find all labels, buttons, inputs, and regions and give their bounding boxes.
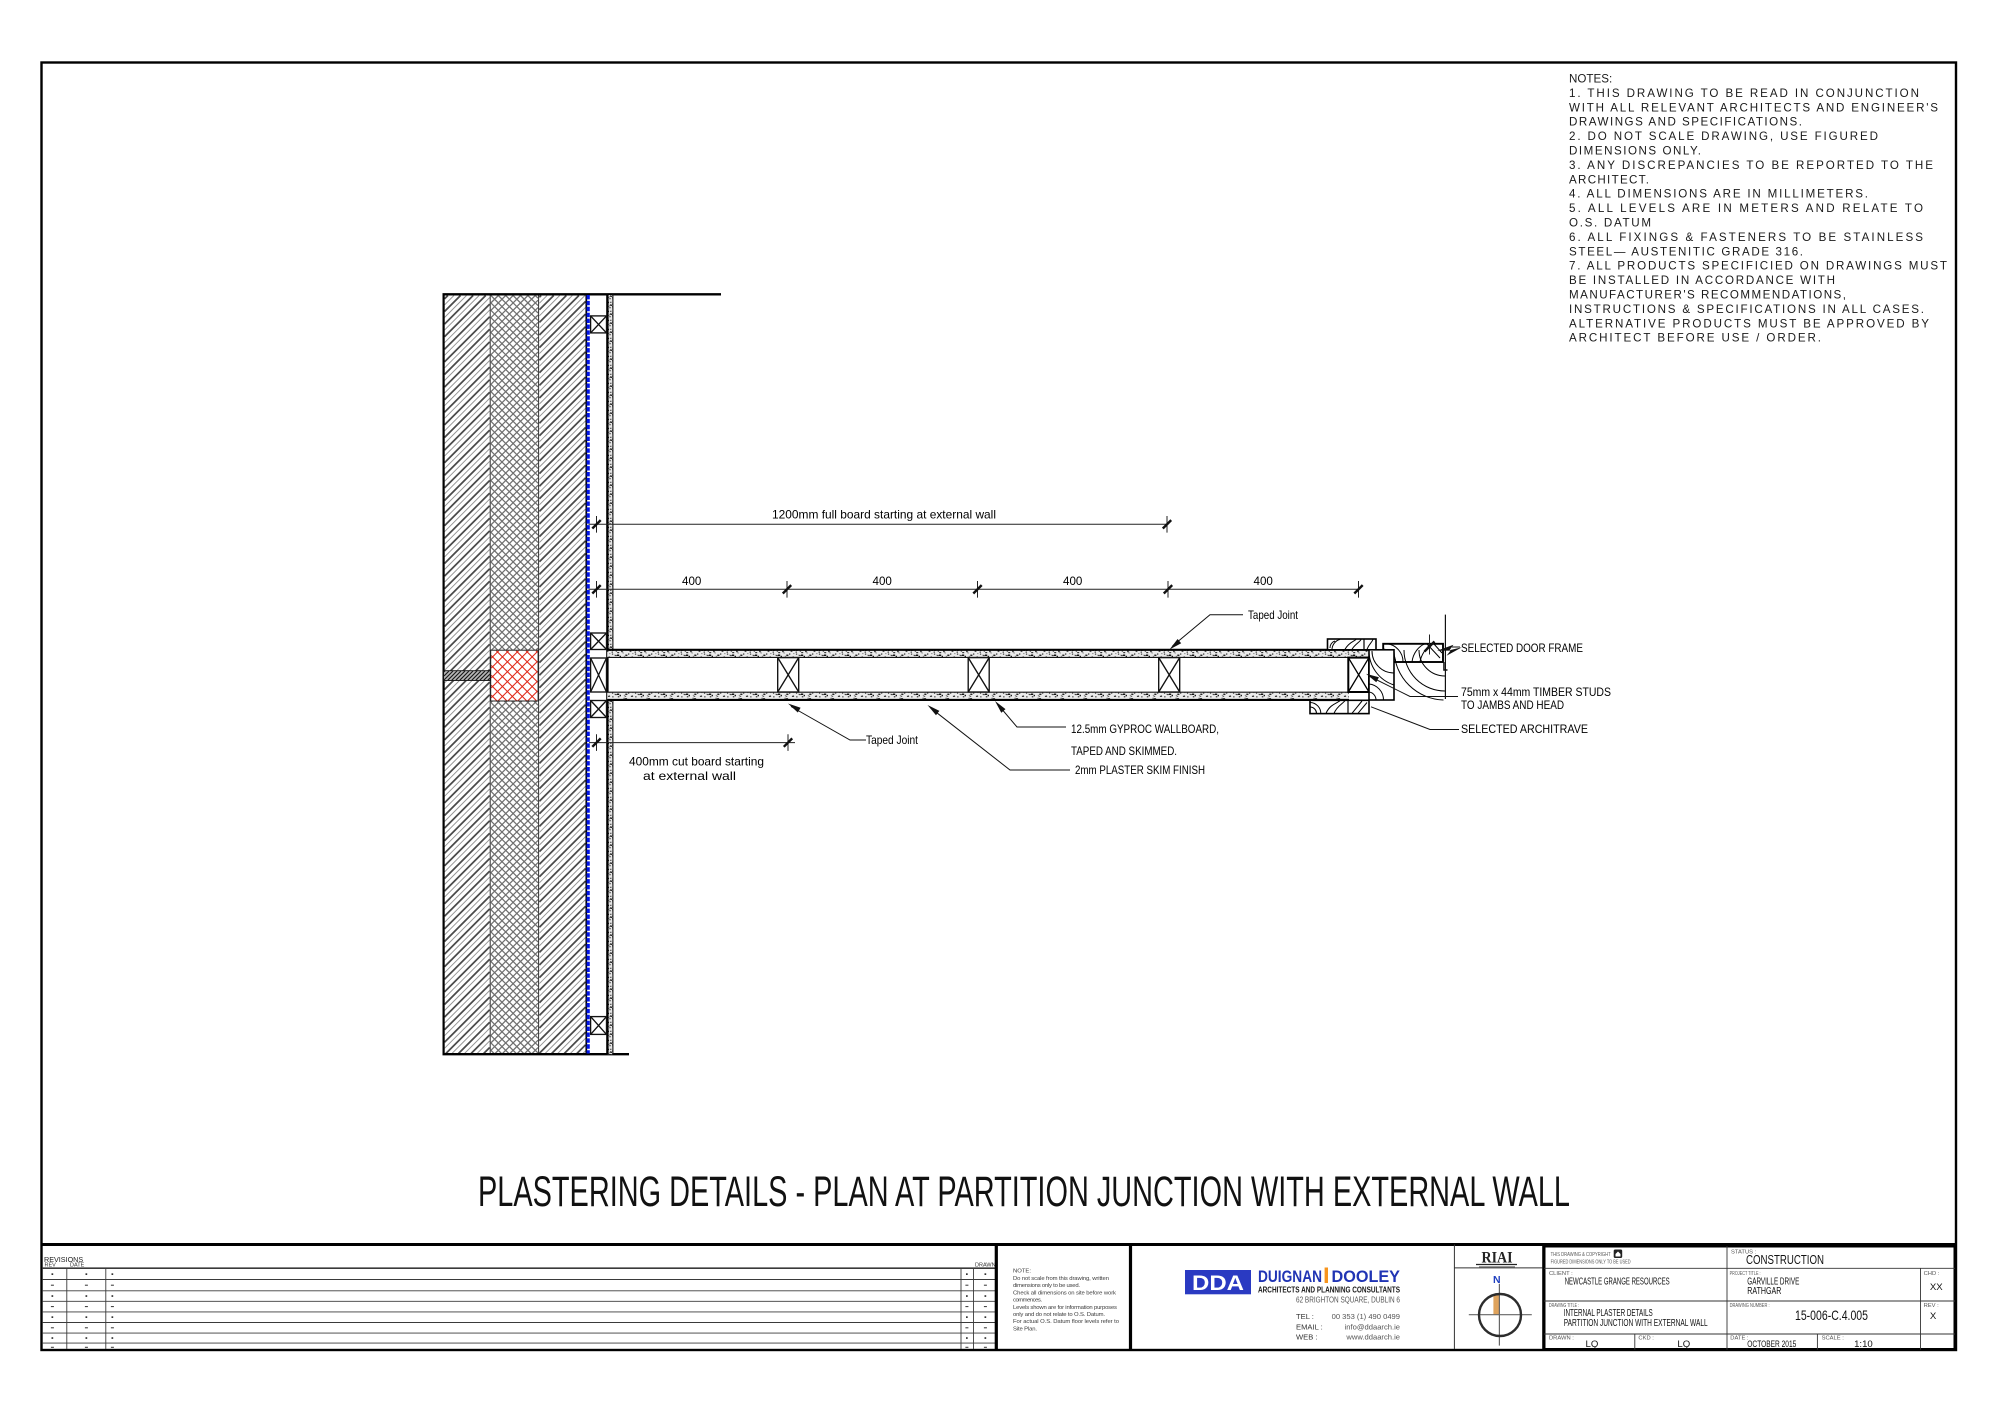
svg-text:X: X	[1930, 1311, 1937, 1322]
svg-text:DATE :: DATE :	[1730, 1336, 1749, 1342]
svg-text:62 BRIGHTON SQUARE, DUBLIN 6: 62 BRIGHTON SQUARE, DUBLIN 6	[1296, 1295, 1400, 1305]
svg-text:2. DO NOT SCALE DRAWING, USE F: 2. DO NOT SCALE DRAWING, USE FIGURED	[1569, 130, 1878, 143]
svg-text:XX: XX	[1930, 1282, 1943, 1293]
svg-text:INTERNAL PLASTER DETAILS: INTERNAL PLASTER DETAILS	[1564, 1308, 1653, 1319]
svg-text:NEWCASTLE GRANGE RESOURCES: NEWCASTLE GRANGE RESOURCES	[1565, 1277, 1670, 1288]
svg-text:DRAWN :: DRAWN :	[1549, 1336, 1574, 1342]
svg-text:DIMENSIONS ONLY.: DIMENSIONS ONLY.	[1569, 145, 1701, 158]
svg-text:12.5mm GYPROC WALLBOARD,: 12.5mm GYPROC WALLBOARD,	[1071, 723, 1219, 736]
svg-text:info@ddaarch.ie: info@ddaarch.ie	[1345, 1323, 1400, 1332]
svg-text:400: 400	[682, 575, 701, 588]
svg-text:EMAIL :: EMAIL :	[1296, 1323, 1323, 1332]
svg-text:DDA: DDA	[1192, 1271, 1244, 1295]
svg-text:ARCHITECTS AND PLANNING CONSUL: ARCHITECTS AND PLANNING CONSULTANTS	[1258, 1285, 1400, 1294]
svg-text:commences.: commences.	[1013, 1298, 1042, 1304]
svg-text:ARCHITECT.: ARCHITECT.	[1569, 173, 1649, 186]
svg-text:For actual O.S. Datum floor le: For actual O.S. Datum floor levels refer…	[1013, 1319, 1120, 1325]
svg-text:LQ: LQ	[1677, 1339, 1690, 1350]
svg-text:OCTOBER 2015: OCTOBER 2015	[1747, 1339, 1796, 1350]
svg-text:SELECTED DOOR FRAME: SELECTED DOOR FRAME	[1461, 642, 1583, 655]
svg-text:400: 400	[1063, 575, 1082, 588]
svg-text:400: 400	[1254, 575, 1273, 588]
svg-text:NOTES:: NOTES:	[1569, 73, 1612, 86]
svg-text:DATE: DATE	[70, 1263, 85, 1269]
svg-text:MANUFACTURER'S RECOMMENDATIONS: MANUFACTURER'S RECOMMENDATIONS,	[1569, 289, 1846, 302]
svg-text:TAPED AND SKIMMED.: TAPED AND SKIMMED.	[1071, 745, 1177, 758]
svg-text:TO JAMBS AND HEAD: TO JAMBS AND HEAD	[1461, 699, 1564, 712]
svg-text:www.ddaarch.ie: www.ddaarch.ie	[1345, 1333, 1400, 1342]
svg-text:PARTITION JUNCTION WITH EXTERN: PARTITION JUNCTION WITH EXTERNAL WALL	[1564, 1318, 1708, 1329]
svg-text:Check all dimensions on site b: Check all dimensions on site before work	[1013, 1290, 1116, 1296]
svg-text:STEEL— AUSTENITIC GRADE 316.: STEEL— AUSTENITIC GRADE 316.	[1569, 245, 1803, 258]
svg-text:DOOLEY: DOOLEY	[1332, 1268, 1401, 1286]
svg-text:THIS DRAWING & COPYRIGHT: THIS DRAWING & COPYRIGHT	[1551, 1252, 1611, 1258]
svg-text:INSTRUCTIONS & SPECIFICATIONS: INSTRUCTIONS & SPECIFICATIONS IN ALL CAS…	[1569, 303, 1924, 316]
svg-text:at external wall: at external wall	[643, 770, 736, 783]
svg-text:2mm PLASTER SKIM FINISH: 2mm PLASTER SKIM FINISH	[1075, 764, 1205, 777]
svg-text:400mm cut board starting: 400mm cut board starting	[629, 756, 764, 769]
svg-text:dimensions only to be used.: dimensions only to be used.	[1013, 1283, 1080, 1289]
svg-text:DRAWINGS AND SPECIFICATIONS.: DRAWINGS AND SPECIFICATIONS.	[1569, 116, 1802, 129]
svg-text:3. ANY DISCREPANCIES TO BE REP: 3. ANY DISCREPANCIES TO BE REPORTED TO T…	[1569, 159, 1933, 172]
svg-text:SCALE :: SCALE :	[1822, 1336, 1845, 1342]
svg-text:Taped Joint: Taped Joint	[1248, 609, 1299, 622]
svg-text:WEB :: WEB :	[1296, 1333, 1318, 1342]
svg-text:O.S. DATUM: O.S. DATUM	[1569, 217, 1651, 230]
svg-text:75mm x 44mm TIMBER STUDS: 75mm x 44mm TIMBER STUDS	[1461, 686, 1611, 699]
svg-text:DRAWING NUMBER :: DRAWING NUMBER :	[1730, 1303, 1770, 1309]
svg-text:Do not scale from this drawing: Do not scale from this drawing, written	[1013, 1276, 1109, 1282]
svg-text:LQ: LQ	[1586, 1339, 1599, 1350]
svg-text:RATHGAR: RATHGAR	[1747, 1286, 1781, 1297]
svg-text:WITH ALL RELEVANT ARCHITECTS A: WITH ALL RELEVANT ARCHITECTS AND ENGINEE…	[1569, 101, 1938, 114]
svg-text:only and do not relate to O.S.: only and do not relate to O.S. Datum.	[1013, 1312, 1105, 1318]
svg-text:BE INSTALLED IN ACCORDANCE WIT: BE INSTALLED IN ACCORDANCE WITH	[1569, 274, 1835, 287]
svg-text:REV :: REV :	[1924, 1303, 1940, 1309]
svg-text:CHD :: CHD :	[1924, 1271, 1940, 1277]
svg-text:REV: REV	[45, 1263, 57, 1269]
svg-text:TEL :: TEL :	[1296, 1312, 1314, 1321]
svg-text:NOTE:: NOTE:	[1013, 1269, 1031, 1275]
svg-text:1. THIS DRAWING TO BE READ IN: 1. THIS DRAWING TO BE READ IN CONJUNCTIO…	[1569, 87, 1919, 100]
svg-text:1200mm full board starting at: 1200mm full board starting at external w…	[772, 509, 996, 522]
svg-text:1:10: 1:10	[1854, 1339, 1873, 1350]
svg-text:CONSTRUCTION: CONSTRUCTION	[1746, 1253, 1824, 1267]
svg-text:CKD :: CKD :	[1638, 1336, 1654, 1342]
svg-text:00 353 (1) 490 0499: 00 353 (1) 490 0499	[1332, 1312, 1400, 1321]
svg-text:DRAWN: DRAWN	[975, 1263, 996, 1269]
svg-text:PLASTERING DETAILS - PLAN AT P: PLASTERING DETAILS - PLAN AT PARTITION J…	[478, 1168, 1570, 1216]
svg-text:DUIGNAN: DUIGNAN	[1258, 1268, 1322, 1286]
svg-text:Site Plan.: Site Plan.	[1013, 1326, 1037, 1332]
svg-text:Levels shown are for informati: Levels shown are for information purpose…	[1013, 1305, 1117, 1311]
svg-text:400: 400	[873, 575, 892, 588]
svg-text:Taped Joint: Taped Joint	[866, 734, 919, 747]
svg-text:FIGURED DIMENSIONS ONLY TO BE: FIGURED DIMENSIONS ONLY TO BE USED	[1551, 1260, 1631, 1266]
svg-text:4. ALL DIMENSIONS ARE IN MILLI: 4. ALL DIMENSIONS ARE IN MILLIMETERS.	[1569, 188, 1868, 201]
svg-text:SELECTED ARCHITRAVE: SELECTED ARCHITRAVE	[1461, 723, 1588, 736]
svg-text:15-006-C.4.005: 15-006-C.4.005	[1795, 1308, 1868, 1323]
